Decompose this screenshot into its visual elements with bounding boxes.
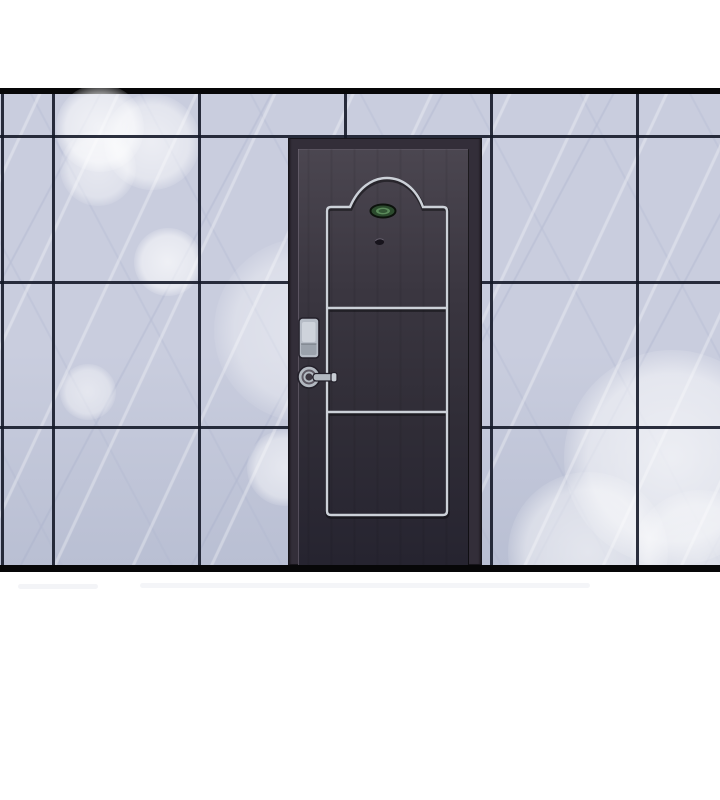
- handle-lever-tip: [331, 373, 337, 383]
- tile-grout-vertical: [636, 94, 639, 565]
- silver-trim-moulding: [327, 178, 447, 515]
- digital-door-lock: [299, 318, 319, 358]
- tile-grout-vertical: [1, 94, 4, 565]
- entrance-door: [288, 138, 482, 565]
- tile-grout-vertical: [490, 94, 493, 565]
- tile-grout-vertical: [198, 94, 201, 565]
- trim-shadow: [328, 180, 448, 517]
- comic-panel-page: [0, 0, 720, 800]
- panel-bottom-border: [0, 565, 720, 572]
- tile-grout-vertical: [52, 94, 55, 565]
- lock-display: [302, 322, 316, 342]
- floor-smudge: [18, 584, 98, 589]
- lock-cover: [301, 344, 317, 355]
- floor-smudge: [140, 583, 590, 588]
- door-trim-and-hardware: [288, 138, 482, 565]
- door-handle: [298, 366, 337, 388]
- room-number-plate: [371, 205, 396, 218]
- peephole: [375, 239, 384, 245]
